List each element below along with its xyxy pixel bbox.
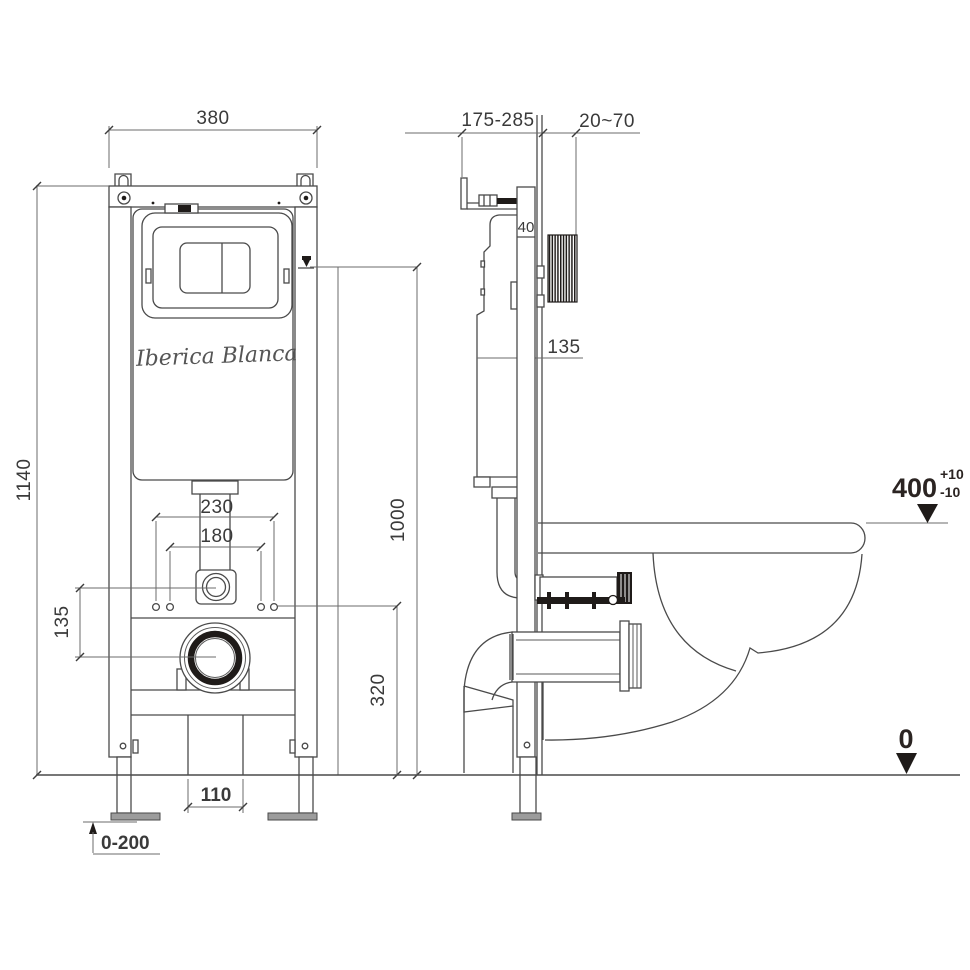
tolerance-plus-label: +10: [940, 466, 964, 482]
technical-drawing: 380 Ib: [0, 0, 970, 970]
wall-hatch: [548, 235, 577, 302]
bracket-rod: [479, 195, 497, 206]
plate-tab-left: [146, 269, 151, 283]
waste-connector: [510, 621, 641, 691]
dim-frame-width: 380: [105, 108, 321, 168]
frame-top-crossbar: [109, 186, 317, 207]
frame-legs: [111, 740, 317, 820]
dim-0-200-label: 0-200: [101, 833, 150, 854]
dim-frame-height: 1140: [14, 182, 109, 779]
dim-135-left-label: 135: [52, 605, 73, 638]
cistern: Iberica Blanca: [133, 204, 298, 480]
flush-sleeve: [540, 577, 617, 598]
level-marker-icon: [917, 504, 938, 523]
dim-1000-label: 1000: [388, 498, 409, 542]
front-view: 380 Ib: [14, 108, 421, 854]
toilet-seat: [538, 523, 865, 553]
dim-seat-height: 400 +10 -10: [866, 466, 964, 523]
tolerance-minus-label: -10: [940, 484, 960, 500]
fixing-stud: [535, 572, 632, 609]
flush-buttons: [180, 243, 250, 293]
dim-320-label: 320: [368, 673, 389, 706]
waste-outlet-area: [131, 618, 295, 775]
dim-380-label: 380: [196, 108, 229, 129]
frame-rail-left: [109, 207, 131, 757]
dim-110-label: 110: [201, 785, 232, 806]
floor-marker-icon: [896, 753, 917, 774]
leg-tube-right: [299, 757, 313, 813]
dim-20-70-label: 20~70: [579, 111, 635, 132]
floor-zero-label: 0: [898, 724, 913, 754]
dim-175-285-label: 175-285: [461, 110, 534, 131]
foot-plate-left: [111, 813, 160, 820]
inlet-valve-icon: [302, 256, 311, 260]
installation-diagram: 380 Ib: [0, 0, 970, 970]
dim-135-right-label: 135: [547, 337, 580, 358]
dim-180-label: 180: [200, 526, 233, 547]
dim-feet-range: 0-200: [83, 822, 160, 854]
foot-plate-right: [268, 813, 317, 820]
dim-400-label: 400: [892, 473, 937, 503]
dim-40-label: 40: [518, 219, 535, 236]
plate-tab-right: [284, 269, 289, 283]
wall-bracket: [461, 178, 517, 209]
dim-floor-level: 0: [896, 724, 917, 774]
leg-tube-left: [117, 757, 131, 813]
plate-clip-icon: [178, 205, 191, 212]
dim-1140-label: 1140: [14, 459, 35, 502]
dim-waste-pipe: 110: [184, 779, 247, 813]
drain-elbow: [464, 632, 513, 773]
frame-top: [109, 174, 317, 207]
foot-plate-side: [512, 813, 541, 820]
dim-230-label: 230: [200, 497, 233, 518]
frame-rail-right: [295, 207, 317, 757]
side-view: 175-285 20~70: [405, 110, 964, 820]
wall-finish-section: [537, 235, 577, 307]
